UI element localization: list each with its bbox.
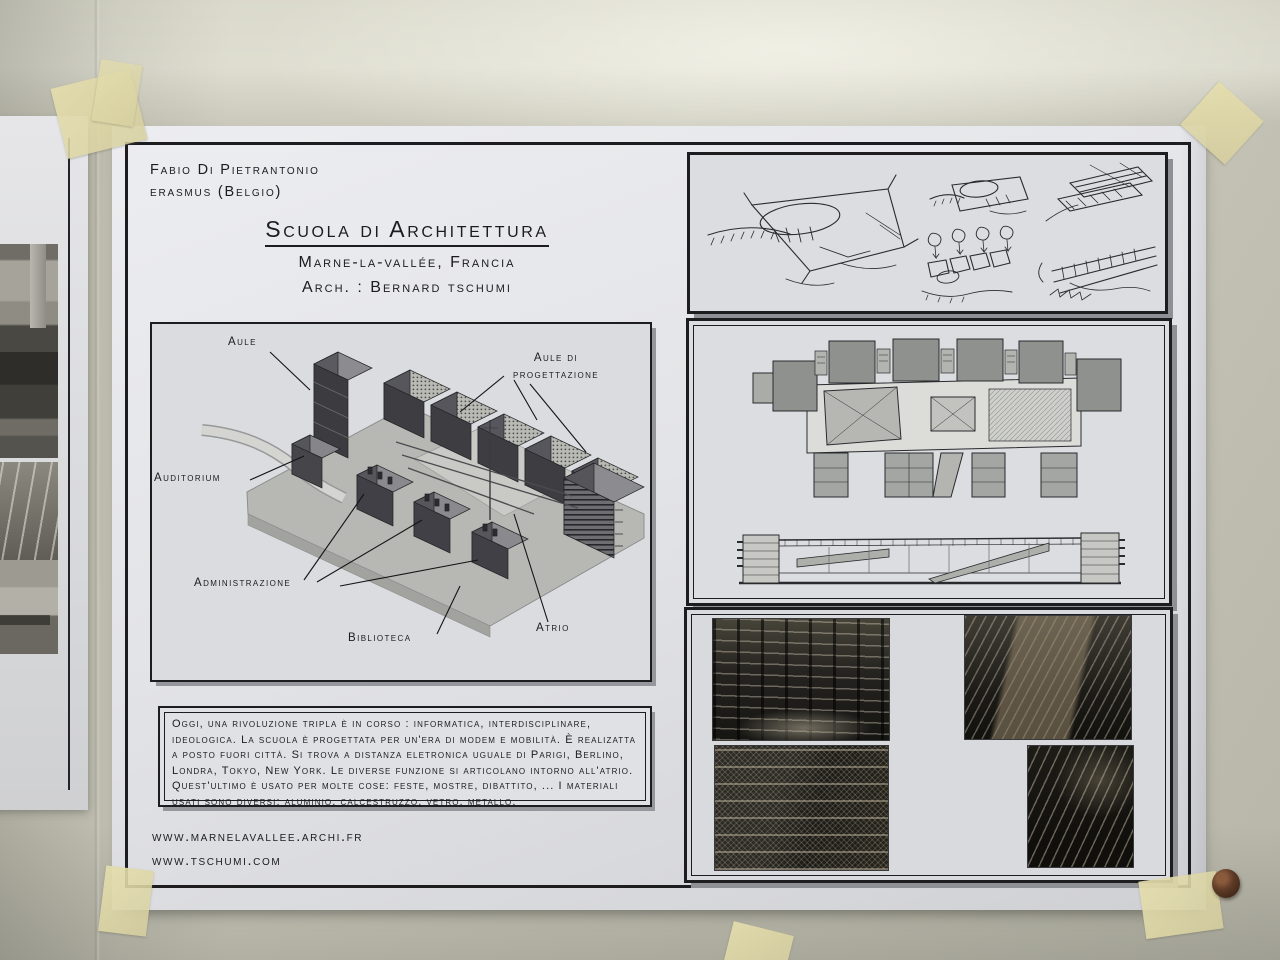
author-name: Fabio Di Pietrantonio: [150, 160, 320, 182]
photo-of-poster-wall: { "colors": { "wall": "#c6c5b8", "paper"…: [0, 0, 1280, 960]
label-auditorium: Auditorium: [154, 472, 221, 484]
interior-photos-panel: [684, 607, 1173, 883]
main-poster: Fabio Di Pietrantonio erasmus (Belgio) S…: [112, 126, 1206, 910]
label-aule-di-progettazione: Aule di progettazione: [470, 350, 642, 383]
poster-subtitle-architect: Arch. : Bernard tschumi: [232, 279, 582, 297]
masking-tape-bottom-center: [724, 921, 794, 960]
poster-subtitle-location: Marne-la-vallée, Francia: [232, 254, 582, 272]
masking-tape-bottom-right: [1138, 871, 1223, 939]
author-block: Fabio Di Pietrantonio erasmus (Belgio): [150, 160, 320, 204]
left-poster-photo-library-column: [0, 244, 58, 352]
floor-plan-and-section-drawing: [689, 321, 1163, 597]
push-pin: [1212, 869, 1240, 898]
photo-walkway-mesh-panel: [715, 746, 888, 870]
left-poster-border-line: [68, 138, 70, 790]
poster-title: Scuola di Architettura: [265, 216, 548, 247]
label-atrio: Atrio: [536, 622, 570, 634]
left-poster-photo-reading-room: [0, 560, 58, 654]
description-text: Oggi, una rivoluzione tripla è in corso …: [172, 717, 638, 811]
masking-tape-bottom-left: [98, 865, 154, 936]
photo-atrium-columns: [713, 619, 889, 740]
website-links: www.marnelavallee.archi.fr www.tschumi.c…: [152, 826, 363, 874]
left-poster-partial: [0, 116, 88, 810]
label-biblioteca: Biblioteca: [348, 632, 411, 644]
left-poster-photo-bookshelves: [0, 352, 58, 458]
label-aule: Aule: [228, 336, 257, 348]
concept-sketches-drawing: [690, 155, 1159, 305]
description-box: Oggi, una rivoluzione tripla è in corso …: [158, 706, 652, 807]
photo-atrium-suspended-volume: [965, 616, 1131, 739]
author-program: erasmus (Belgio): [150, 182, 320, 204]
sketches-panel: [687, 152, 1168, 314]
title-block: Scuola di Architettura Marne-la-vallée, …: [232, 216, 582, 297]
left-poster-photo-curved-glazing: [0, 462, 58, 560]
website-tschumi: www.tschumi.com: [152, 850, 363, 874]
label-administrazione: Administrazione: [194, 577, 291, 589]
website-marnelavallee: www.marnelavallee.archi.fr: [152, 826, 363, 850]
plan-section-panel: [686, 318, 1172, 606]
photo-roof-trusses: [1028, 746, 1133, 867]
axonometric-diagram-panel: Aule Aule di progettazione Auditorium Ad…: [150, 322, 652, 682]
